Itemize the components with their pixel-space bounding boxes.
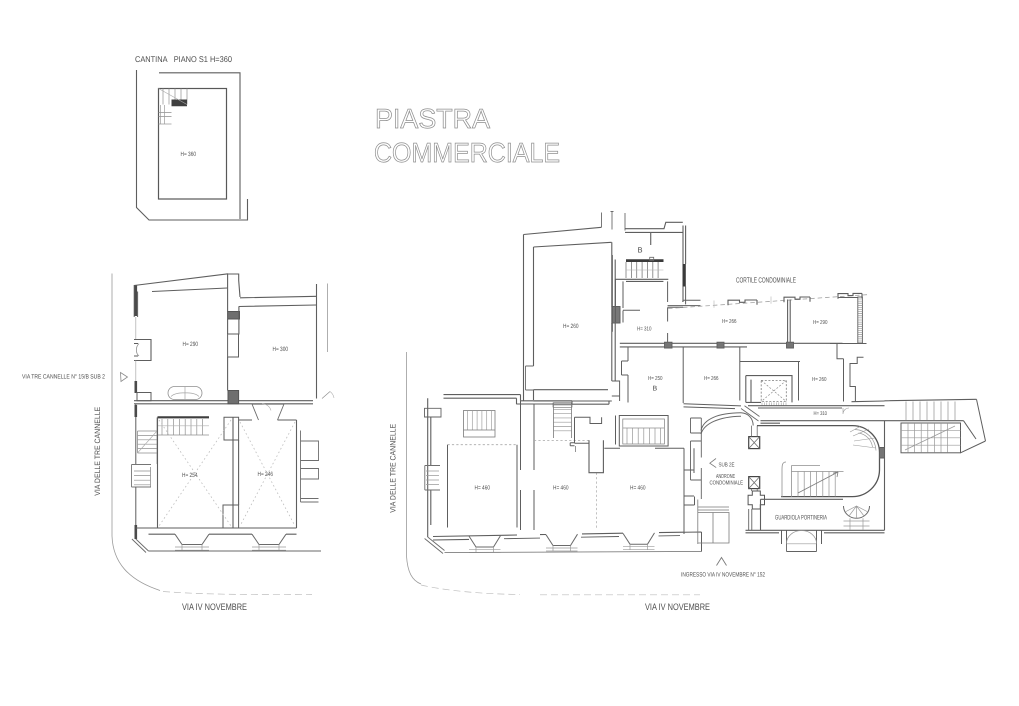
svg-text:VIA IV NOVEMBRE: VIA IV NOVEMBRE	[182, 601, 247, 612]
svg-text:CONDOMINIALE: CONDOMINIALE	[710, 479, 744, 486]
svg-text:H= 460: H= 460	[553, 484, 569, 491]
svg-text:H= 290: H= 290	[183, 341, 199, 348]
svg-text:VIA DELLE TRE CANNELLE: VIA DELLE TRE CANNELLE	[389, 424, 398, 513]
svg-text:GUARDIOLA PORTINERIA: GUARDIOLA PORTINERIA	[775, 515, 827, 522]
svg-text:H= 260: H= 260	[563, 323, 579, 330]
svg-text:H= 310: H= 310	[814, 411, 828, 417]
svg-text:H= 266: H= 266	[722, 318, 737, 325]
svg-text:H= 290: H= 290	[813, 319, 828, 326]
svg-text:VIA IV NOVEMBRE: VIA IV NOVEMBRE	[645, 601, 710, 612]
svg-text:H= 360: H= 360	[181, 151, 197, 158]
svg-text:PIASTRA: PIASTRA	[375, 103, 491, 134]
svg-text:ANDRONE: ANDRONE	[716, 473, 735, 480]
svg-text:VIA DELLE TRE CANNELLE: VIA DELLE TRE CANNELLE	[93, 407, 102, 496]
svg-text:COMMERCIALE: COMMERCIALE	[374, 137, 560, 168]
svg-text:VIA TRE CANNELLE N° 15/B SUB 2: VIA TRE CANNELLE N° 15/B SUB 2	[22, 373, 105, 380]
svg-text:INGRESSO VIA IV NOVEMBRE N° 15: INGRESSO VIA IV NOVEMBRE N° 152	[681, 571, 765, 578]
svg-text:B: B	[638, 246, 643, 255]
svg-text:H= 254: H= 254	[182, 472, 198, 479]
svg-text:H= 460: H= 460	[630, 484, 646, 491]
svg-text:H= 310: H= 310	[637, 326, 652, 333]
svg-text:H= 260: H= 260	[812, 376, 827, 383]
svg-text:CORTILE CONDOMINIALE: CORTILE CONDOMINIALE	[736, 275, 796, 284]
svg-text:H= 460: H= 460	[475, 484, 491, 491]
svg-text:CANTINA PIANO S1 H=360: CANTINA PIANO S1 H=360	[135, 54, 232, 64]
svg-text:H= 300: H= 300	[273, 346, 289, 353]
svg-text:H= 250: H= 250	[648, 375, 663, 382]
svg-text:H= 266: H= 266	[704, 375, 719, 382]
svg-text:B: B	[653, 386, 658, 393]
svg-text:H= 246: H= 246	[258, 471, 274, 478]
svg-text:SUB 2E: SUB 2E	[719, 462, 735, 469]
